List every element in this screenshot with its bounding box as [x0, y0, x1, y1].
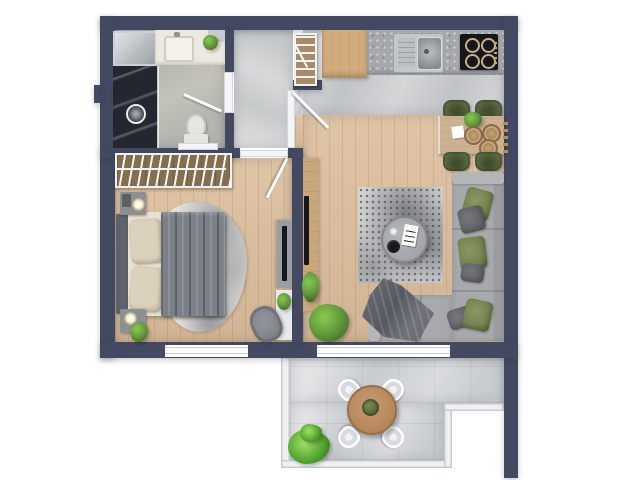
sofa-armrest-top [452, 172, 504, 184]
radiator-shelf [294, 33, 317, 86]
bedroom-door-threshold [240, 150, 288, 157]
nightstand-tray [122, 194, 131, 207]
corner-cabinet [322, 30, 367, 78]
bedroom-window [165, 345, 248, 357]
shower-glass-panel [157, 66, 159, 148]
bathroom-wall-niche [178, 143, 218, 150]
dining-chair [475, 152, 502, 171]
tv-screen [304, 196, 309, 265]
wall-bathroom-right-lower [225, 113, 234, 148]
wall-bottom [100, 342, 518, 358]
table-lamp [132, 198, 145, 211]
dining-chair [443, 152, 470, 171]
balcony-railing-notch-vertical [444, 403, 452, 468]
wall-peg-strip [503, 119, 508, 153]
sink-basin [417, 37, 442, 70]
balcony-railing-notch-horizontal [444, 403, 504, 411]
bed-pillow [129, 266, 164, 312]
table-decor-sprig [389, 227, 398, 236]
glass-shaft [113, 31, 157, 66]
bed-headboard [116, 214, 128, 314]
cooktop-controls [494, 40, 497, 64]
table-centerpiece [362, 399, 379, 416]
sink-faucet [424, 49, 429, 54]
open-wardrobe [115, 153, 232, 188]
wall-top [100, 16, 518, 30]
kitchen-sink-unit [393, 33, 444, 73]
bathroom-door-threshold [224, 72, 233, 113]
bedroom-tv-screen [282, 226, 287, 281]
shower-head [126, 104, 146, 124]
napkin [451, 125, 465, 139]
wall-left-notch [94, 85, 100, 103]
balcony-door [317, 345, 450, 357]
doorway-wood-patch [295, 115, 303, 148]
black-bowl [387, 240, 400, 253]
vanity-faucet [174, 32, 180, 37]
wardrobe-rail [117, 168, 226, 170]
sofa-seam [452, 290, 504, 292]
sofa-pillow-gray [460, 262, 485, 283]
cooktop [460, 34, 498, 70]
sink-drainboard [398, 38, 415, 67]
burner-icon [465, 54, 480, 69]
burner-icon [465, 38, 480, 53]
vanity-sink-basin [164, 36, 194, 62]
entry-door-threshold [287, 90, 295, 148]
hallway-floor [234, 30, 293, 148]
floor-plan-canvas [0, 0, 632, 480]
duvet [161, 212, 225, 316]
wall-partition-bedroom-living [292, 148, 303, 342]
bed-pillow [129, 218, 164, 264]
wall-right [504, 16, 518, 478]
wall-bathroom-right-upper [225, 30, 234, 72]
